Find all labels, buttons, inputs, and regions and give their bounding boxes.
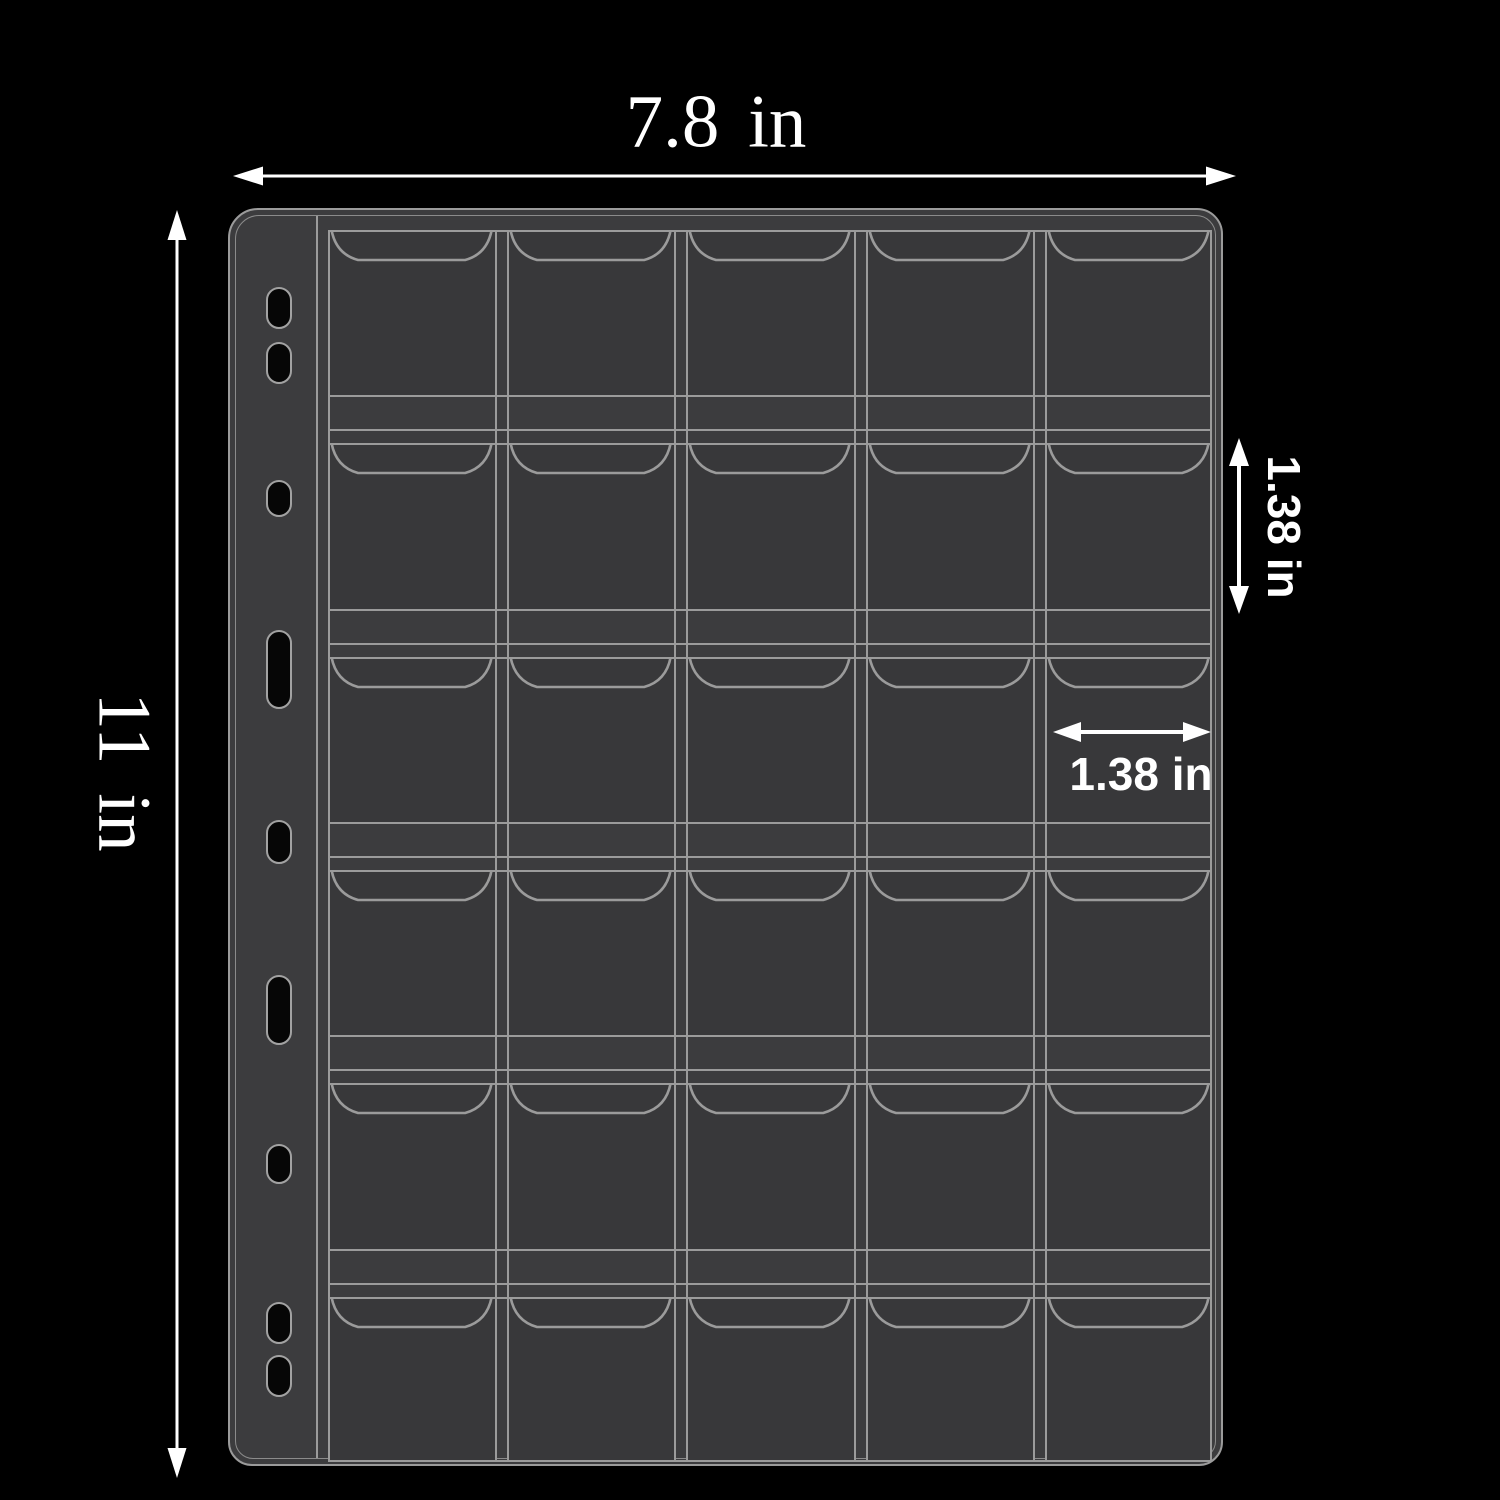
pocket-r5-c2 bbox=[507, 1083, 674, 1248]
pocket-flap bbox=[866, 870, 1033, 906]
grid-horizontal-line-4 bbox=[328, 443, 1212, 445]
pocket-flap bbox=[686, 443, 853, 479]
pocket-height-arrow bbox=[1229, 438, 1249, 614]
page-width-arrow bbox=[233, 167, 1236, 186]
binder-hole-3 bbox=[266, 480, 292, 517]
pocket-r6-c4 bbox=[866, 1297, 1033, 1462]
pocket-flap bbox=[507, 443, 674, 479]
pocket-r2-c4 bbox=[866, 443, 1033, 608]
grid-horizontal-line-13 bbox=[328, 1083, 1212, 1085]
pocket-flap bbox=[686, 657, 853, 693]
grid-horizontal-line-1 bbox=[328, 230, 1212, 232]
grid-horizontal-line-11 bbox=[328, 1035, 1212, 1037]
pocket-r1-c5 bbox=[1045, 230, 1212, 395]
grid-horizontal-line-10 bbox=[328, 870, 1212, 872]
pocket-flap bbox=[686, 1083, 853, 1119]
pocket-flap bbox=[507, 657, 674, 693]
pocket-width-label: 1.38 in bbox=[1069, 751, 1212, 797]
pocket-r5-c1 bbox=[328, 1083, 495, 1248]
grid-vertical-line-10 bbox=[1210, 230, 1212, 1462]
pocket-r3-c3 bbox=[686, 657, 853, 822]
pocket-r4-c1 bbox=[328, 870, 495, 1035]
pocket-flap bbox=[1045, 1297, 1212, 1333]
grid-vertical-line-6 bbox=[854, 230, 856, 1462]
pocket-r5-c3 bbox=[686, 1083, 853, 1248]
pocket-flap bbox=[507, 230, 674, 266]
pocket-r1-c4 bbox=[866, 230, 1033, 395]
binder-hole-4 bbox=[266, 630, 292, 709]
pocket-flap bbox=[866, 443, 1033, 479]
pocket-flap bbox=[866, 657, 1033, 693]
binder-hole-8 bbox=[266, 1302, 292, 1344]
grid-horizontal-line-15 bbox=[328, 1283, 1212, 1285]
pocket-flap bbox=[1045, 230, 1212, 266]
binder-strip bbox=[236, 216, 318, 1458]
pocket-flap bbox=[328, 1083, 495, 1119]
pocket-r6-c1 bbox=[328, 1297, 495, 1462]
grid-horizontal-line-14 bbox=[328, 1249, 1212, 1251]
pocket-r1-c3 bbox=[686, 230, 853, 395]
pocket-flap bbox=[1045, 443, 1212, 479]
grid-vertical-line-5 bbox=[686, 230, 688, 1462]
pocket-r4-c2 bbox=[507, 870, 674, 1035]
page-height-arrow bbox=[168, 210, 187, 1478]
grid-horizontal-line-2 bbox=[328, 395, 1212, 397]
pocket-r3-c1 bbox=[328, 657, 495, 822]
pocket-grid bbox=[328, 230, 1212, 1462]
binder-hole-9 bbox=[266, 1355, 292, 1397]
grid-vertical-line-2 bbox=[495, 230, 497, 1462]
grid-vertical-line-3 bbox=[507, 230, 509, 1462]
binder-hole-5 bbox=[266, 820, 292, 864]
grid-vertical-line-1 bbox=[328, 230, 330, 1462]
binder-hole-1 bbox=[266, 287, 292, 329]
grid-horizontal-line-5 bbox=[328, 609, 1212, 611]
pocket-r2-c2 bbox=[507, 443, 674, 608]
pocket-flap bbox=[507, 1297, 674, 1333]
pocket-r2-c5 bbox=[1045, 443, 1212, 608]
pocket-flap bbox=[328, 230, 495, 266]
grid-horizontal-line-12 bbox=[328, 1069, 1212, 1071]
pocket-r6-c5 bbox=[1045, 1297, 1212, 1462]
pocket-r5-c5 bbox=[1045, 1083, 1212, 1248]
pocket-height-label: 1.38 in bbox=[1261, 455, 1307, 598]
pocket-r6-c3 bbox=[686, 1297, 853, 1462]
pocket-r4-c5 bbox=[1045, 870, 1212, 1035]
binder-hole-6 bbox=[266, 975, 292, 1045]
coin-pocket-page bbox=[228, 208, 1223, 1466]
grid-vertical-line-9 bbox=[1045, 230, 1047, 1462]
page-width-label: 7.8 in bbox=[626, 85, 807, 160]
product-dimension-diagram: 7.8 in 11 in 1.38 in 1.38 in bbox=[0, 0, 1500, 1500]
pocket-r4-c3 bbox=[686, 870, 853, 1035]
pocket-flap bbox=[328, 443, 495, 479]
pocket-flap bbox=[1045, 657, 1212, 693]
pocket-flap bbox=[686, 870, 853, 906]
pocket-flap bbox=[866, 230, 1033, 266]
grid-horizontal-line-3 bbox=[328, 429, 1212, 431]
pocket-r5-c4 bbox=[866, 1083, 1033, 1248]
pocket-flap bbox=[507, 870, 674, 906]
pocket-r6-c2 bbox=[507, 1297, 674, 1462]
page-height-label: 11 in bbox=[87, 692, 162, 851]
pocket-flap bbox=[328, 870, 495, 906]
pocket-r4-c4 bbox=[866, 870, 1033, 1035]
pocket-flap bbox=[507, 1083, 674, 1119]
grid-vertical-line-4 bbox=[674, 230, 676, 1462]
pocket-r1-c2 bbox=[507, 230, 674, 395]
pocket-r3-c2 bbox=[507, 657, 674, 822]
pocket-r2-c3 bbox=[686, 443, 853, 608]
pocket-r1-c1 bbox=[328, 230, 495, 395]
binder-hole-7 bbox=[266, 1144, 292, 1184]
grid-vertical-line-7 bbox=[866, 230, 868, 1462]
grid-horizontal-line-17 bbox=[328, 1460, 1212, 1462]
pocket-flap bbox=[686, 1297, 853, 1333]
pocket-flap bbox=[1045, 1083, 1212, 1119]
grid-horizontal-line-7 bbox=[328, 657, 1212, 659]
binder-hole-2 bbox=[266, 342, 292, 384]
grid-horizontal-line-6 bbox=[328, 643, 1212, 645]
pocket-flap bbox=[686, 230, 853, 266]
pocket-flap bbox=[328, 1297, 495, 1333]
pocket-r2-c1 bbox=[328, 443, 495, 608]
grid-horizontal-line-16 bbox=[328, 1297, 1212, 1299]
pocket-flap bbox=[866, 1083, 1033, 1119]
pocket-r3-c4 bbox=[866, 657, 1033, 822]
grid-vertical-line-8 bbox=[1033, 230, 1035, 1462]
pocket-flap bbox=[866, 1297, 1033, 1333]
pocket-flap bbox=[328, 657, 495, 693]
grid-horizontal-line-9 bbox=[328, 856, 1212, 858]
pocket-flap bbox=[1045, 870, 1212, 906]
grid-horizontal-line-8 bbox=[328, 822, 1212, 824]
